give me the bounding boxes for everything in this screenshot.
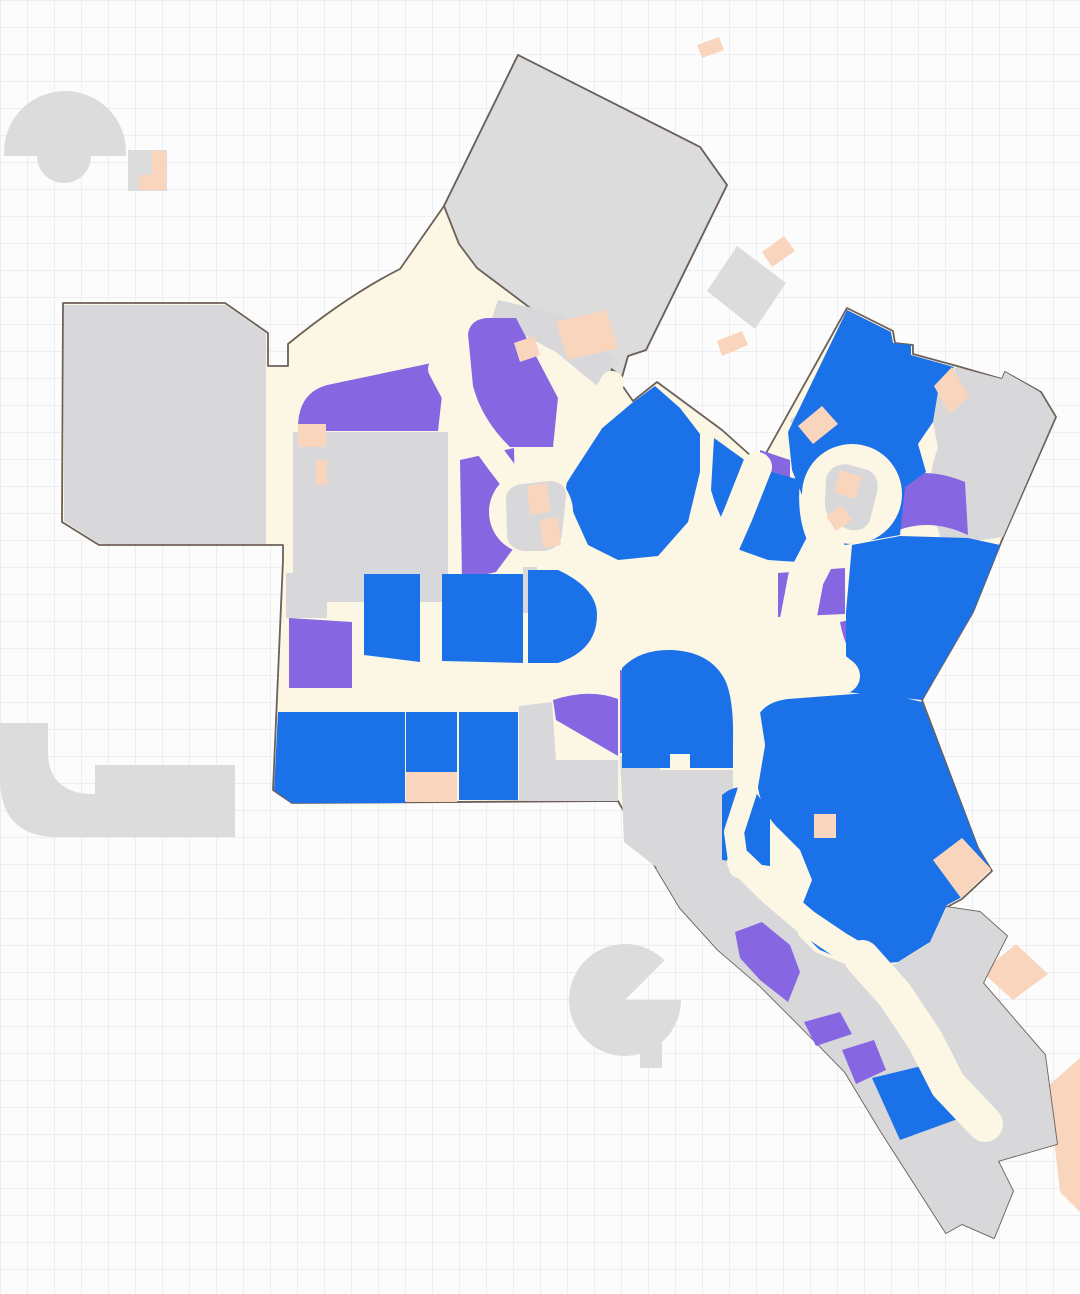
- mall-floor-map-svg: [0, 0, 1080, 1294]
- store-peach-wing-b[interactable]: [316, 460, 327, 485]
- store-peach-row2[interactable]: [406, 772, 457, 802]
- kiosk-west-peach-b[interactable]: [540, 517, 561, 548]
- store-blue-row1-b[interactable]: [442, 574, 523, 663]
- anchor-store-left[interactable]: [64, 305, 266, 544]
- mall-map-canvas: [0, 0, 1080, 1294]
- store-purple-lower-left[interactable]: [289, 618, 352, 688]
- store-blue-row2-a[interactable]: [274, 712, 405, 803]
- store-blue-row2-c[interactable]: [459, 712, 518, 800]
- store-peach-se-small[interactable]: [814, 814, 836, 838]
- other-floor-fan-bottom-tab: [640, 1038, 662, 1068]
- kiosk-west-peach-a[interactable]: [527, 483, 550, 515]
- store-blue-row1-a[interactable]: [364, 574, 420, 662]
- store-blue-row2-b[interactable]: [406, 712, 457, 772]
- store-peach-wing-a[interactable]: [298, 424, 326, 447]
